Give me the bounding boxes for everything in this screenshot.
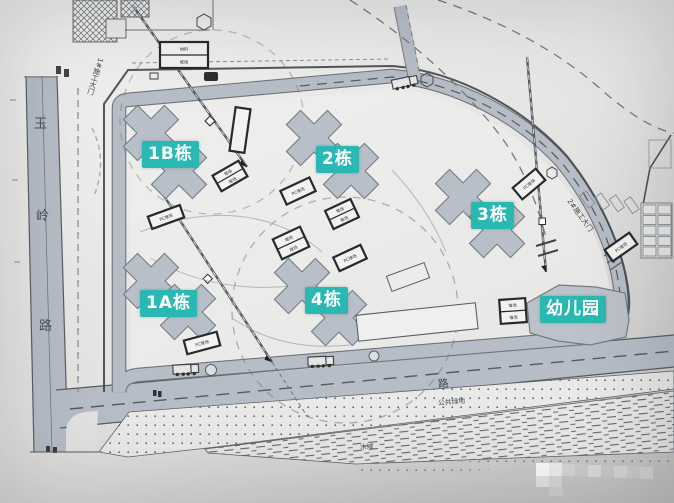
- site-plan-photo: PC堆场堆场堆场堆场堆场PC堆场堆场堆场PC堆场堆场堆场PC堆场PC堆场PC堆场…: [0, 0, 674, 503]
- building-label-1a: 1A栋: [140, 290, 197, 317]
- water-label: 水域: [360, 442, 374, 452]
- site-plan-drawing: PC堆场堆场堆场堆场堆场PC堆场堆场堆场PC堆场堆场堆场PC堆场PC堆场PC堆场…: [0, 0, 674, 503]
- left-road-name-char-1: 玉: [34, 117, 47, 132]
- watermark-mosaic: [536, 463, 653, 496]
- building-label-1b: 1B栋: [142, 141, 199, 168]
- stockyard-shed: 材料堆场: [160, 42, 208, 68]
- bottom-road-name-char: 路: [437, 377, 449, 391]
- shed-label: 堆场: [180, 59, 188, 66]
- stockyard-shed: 堆场堆场: [499, 298, 527, 324]
- shed-label: 材料: [180, 46, 189, 53]
- building-label-2: 2栋: [316, 146, 359, 173]
- left-road-name-char-2: 岭: [36, 209, 49, 224]
- gate1-label: 1#施工大门: [86, 57, 105, 97]
- building-label-3: 3栋: [471, 202, 514, 229]
- building-label-kindergarten: 幼儿园: [540, 296, 606, 323]
- left-road-name-char-3: 路: [39, 318, 52, 334]
- building-label-4: 4栋: [305, 287, 348, 314]
